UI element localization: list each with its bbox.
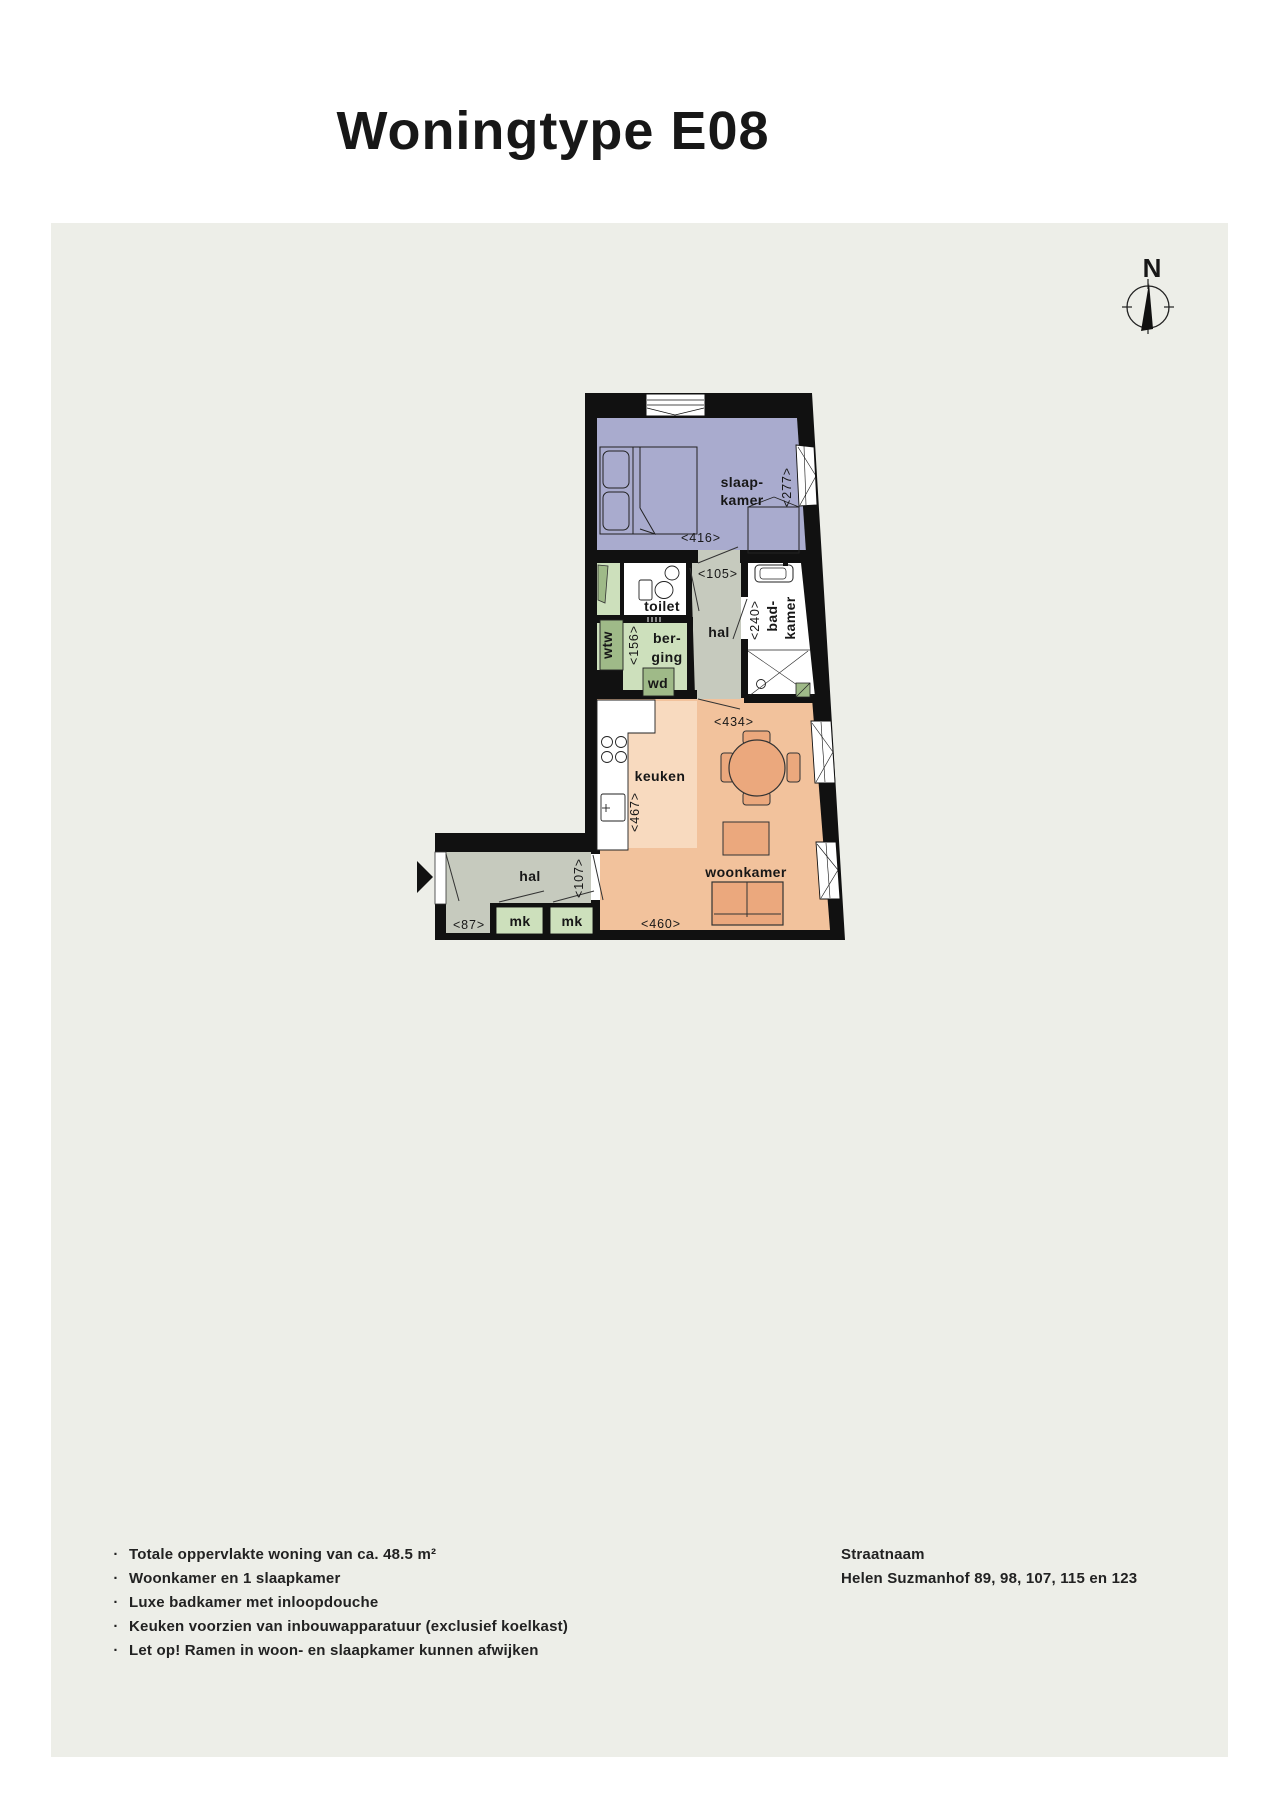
dim-berging: <156> (627, 625, 641, 665)
label-mk-right: mk (561, 913, 582, 929)
list-item-text: Let op! Ramen in woon- en slaapkamer kun… (129, 1639, 539, 1663)
dining-table (729, 740, 785, 796)
list-item-text: Keuken voorzien van inbouwapparatuur (ex… (129, 1615, 568, 1639)
label-mk-left: mk (509, 913, 530, 929)
wall (597, 670, 623, 697)
label-berging-2: ging (651, 649, 682, 665)
list-item-text: Luxe badkamer met inloopdouche (129, 1591, 378, 1615)
label-keuken: keuken (635, 768, 686, 784)
list-item: ·Totale oppervlakte woning van ca. 48.5 … (112, 1543, 568, 1567)
dim-hal-midden: <105> (698, 567, 738, 581)
bullet-icon: · (112, 1567, 120, 1591)
door-opening (697, 690, 741, 699)
list-item-text: Totale oppervlakte woning van ca. 48.5 m… (129, 1543, 436, 1567)
address-heading: Straatnaam (841, 1543, 1137, 1567)
tap-icon (783, 559, 788, 566)
label-badkamer-2: kamer (782, 596, 798, 639)
bullet-icon: · (112, 1615, 120, 1639)
entrance-arrow-icon (417, 861, 433, 893)
label-berging-1: ber- (653, 630, 681, 646)
north-compass: N (1100, 245, 1200, 345)
chair (787, 753, 800, 782)
dim-slaapkamer-depth: <277> (780, 467, 794, 507)
list-item: ·Luxe badkamer met inloopdouche (112, 1591, 568, 1615)
dim-hal-entree-depth: <107> (572, 858, 586, 898)
bullet-icon: · (112, 1639, 120, 1663)
door-opening (591, 854, 600, 900)
label-badkamer-1: bad- (764, 600, 780, 631)
list-item: ·Let op! Ramen in woon- en slaapkamer ku… (112, 1639, 568, 1663)
kitchen-sink-icon (601, 794, 625, 821)
bullet-icon: · (112, 1543, 120, 1567)
list-item-text: Woonkamer en 1 slaapkamer (129, 1567, 340, 1591)
brochure-page: Woningtype E08 N (0, 0, 1280, 1811)
dim-slaapkamer-width: <416> (681, 531, 721, 545)
dim-woonkamer: <460> (641, 917, 681, 931)
door-opening (741, 597, 748, 639)
bathroom-sink-icon (755, 565, 793, 582)
door-opening (698, 550, 740, 563)
list-item: ·Woonkamer en 1 slaapkamer (112, 1567, 568, 1591)
feature-list: ·Totale oppervlakte woning van ca. 48.5 … (112, 1543, 568, 1663)
coffee-table (723, 822, 769, 855)
address-line: Helen Suzmanhof 89, 98, 107, 115 en 123 (841, 1567, 1137, 1591)
toilet-bowl-icon (655, 582, 673, 599)
bullet-icon: · (112, 1591, 120, 1615)
label-wtw: wtw (599, 631, 615, 660)
list-item: ·Keuken voorzien van inbouwapparatuur (e… (112, 1615, 568, 1639)
compass-n-label: N (1143, 253, 1162, 283)
toilet-cistern-icon (639, 580, 652, 600)
dim-hal-entree-width: <87> (453, 918, 485, 932)
label-wd: wd (647, 675, 668, 691)
wall (687, 617, 693, 697)
label-slaapkamer-2: kamer (720, 492, 763, 508)
dim-badkamer: <240> (748, 600, 762, 640)
wall (620, 563, 624, 615)
floor-plan: slaap- kamer <277> <416> toilet <105> ha… (405, 382, 853, 948)
label-woonkamer: woonkamer (704, 864, 787, 880)
label-hal-entree: hal (519, 868, 540, 884)
window-slaapkamer (796, 445, 817, 506)
label-slaapkamer-1: slaap- (721, 474, 764, 490)
page-title: Woningtype E08 (336, 100, 769, 162)
dim-woonkamer-top: <434> (714, 715, 754, 729)
compass-needle-icon (1141, 283, 1153, 331)
label-toilet: toilet (644, 598, 680, 614)
washbasin-icon (665, 566, 679, 580)
address-block: Straatnaam Helen Suzmanhof 89, 98, 107, … (841, 1543, 1137, 1591)
entry-door-opening (435, 852, 446, 904)
dim-keuken: <467> (628, 792, 642, 832)
label-hal-midden: hal (708, 624, 729, 640)
